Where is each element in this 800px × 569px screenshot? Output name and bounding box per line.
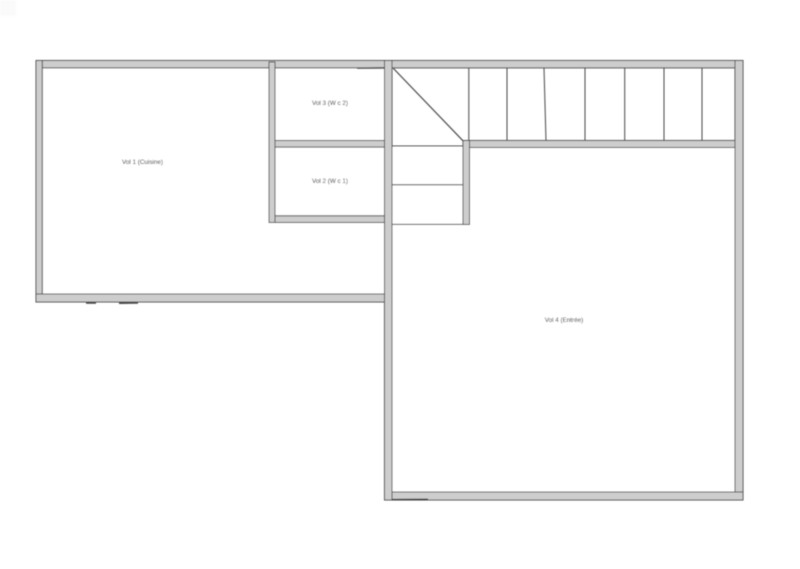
svg-text:Vol 3 (W c 2): Vol 3 (W c 2) <box>312 100 348 107</box>
svg-text:Vol 1 (Cuisine): Vol 1 (Cuisine) <box>122 159 163 166</box>
svg-text:Vol 4 (Entrée): Vol 4 (Entrée) <box>545 317 584 324</box>
svg-text:Vol 2 (W c 1): Vol 2 (W c 1) <box>312 178 348 185</box>
